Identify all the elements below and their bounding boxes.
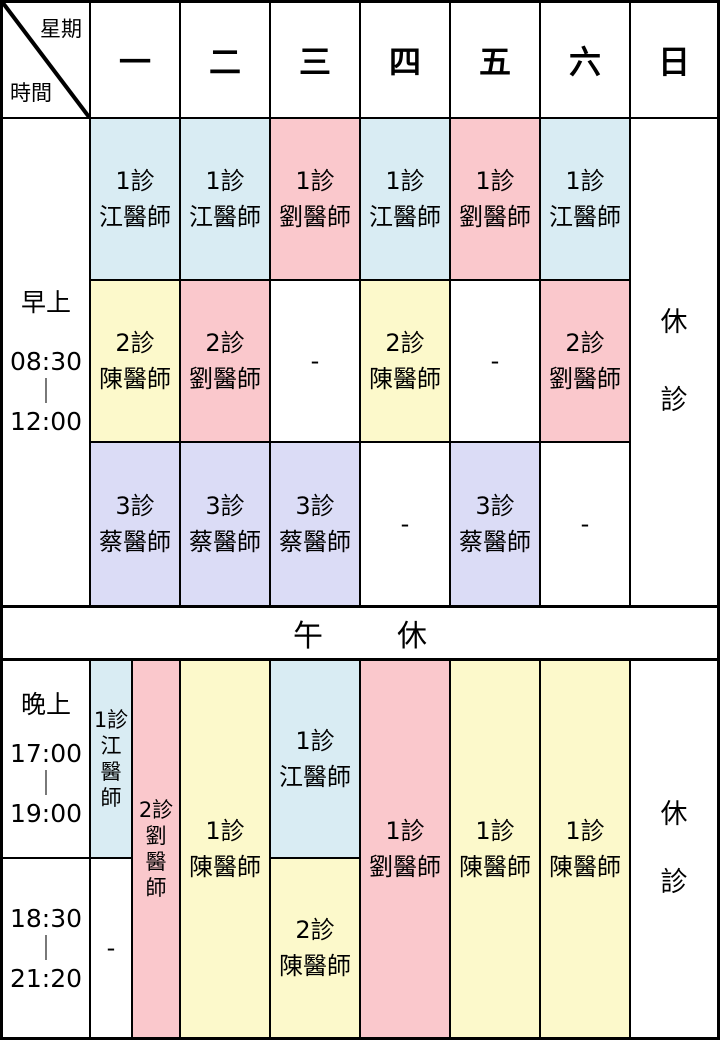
doctor-label: 劉醫師 (549, 361, 621, 397)
doctor-label: 陳醫師 (99, 361, 171, 397)
cell-thu-evening-room1: 1診 劉醫師 (361, 661, 449, 1037)
lunch-char-2: 休 (397, 611, 427, 655)
cell-wed-evening-room2-late: 2診 陳醫師 (271, 859, 359, 1037)
closed-char-2: 診 (661, 868, 688, 898)
day-header-mon: 一 (91, 3, 179, 117)
room-label: 1診 (385, 813, 424, 849)
doctor-char: 師 (146, 875, 167, 901)
morning-period-label: 早上 (21, 285, 71, 320)
cell-mon-evening-room1-late-empty: - (91, 859, 131, 1037)
doctor-label: 劉醫師 (279, 199, 351, 235)
evening-slot1-start: 17:00 (10, 736, 82, 771)
cell-fri-morning-room1: 1診 劉醫師 (451, 119, 539, 279)
room-label: 1診 (205, 163, 244, 199)
cell-mon-evening-room1-early: 1診 江 醫 師 (91, 661, 131, 857)
cell-fri-morning-room2-empty: - (451, 281, 539, 441)
day-header-tue: 二 (181, 3, 269, 117)
room-label: 1診 (475, 163, 514, 199)
empty-slot-dash: - (581, 506, 590, 542)
day-header-sun: 日 (631, 3, 717, 117)
room-label: 1診 (295, 723, 334, 759)
header-corner-cell: 星期 時間 (3, 3, 89, 117)
doctor-label: 蔡醫師 (99, 524, 171, 560)
cell-wed-morning-room1: 1診 劉醫師 (271, 119, 359, 279)
doctor-label: 陳醫師 (549, 849, 621, 885)
cell-mon-morning-room1: 1診 江醫師 (91, 119, 179, 279)
doctor-label: 江醫師 (549, 199, 621, 235)
cell-sat-morning-room2: 2診 劉醫師 (541, 281, 629, 441)
doctor-label: 劉醫師 (459, 199, 531, 235)
doctor-label: 劉醫師 (369, 849, 441, 885)
doctor-char: 醫 (146, 849, 167, 875)
evening-slot2-separator: ｜ (33, 936, 58, 961)
doctor-label: 蔡醫師 (189, 524, 261, 560)
cell-mon-evening-room2: 2診 劉 醫 師 (133, 661, 179, 1037)
doctor-label: 蔡醫師 (459, 524, 531, 560)
doctor-label: 江醫師 (369, 199, 441, 235)
room-label: 1診 (565, 163, 604, 199)
cell-mon-morning-room2: 2診 陳醫師 (91, 281, 179, 441)
evening-period-label: 晚上 (21, 687, 71, 722)
day-header-wed: 三 (271, 3, 359, 117)
evening-slot2-end: 21:20 (10, 961, 82, 996)
cell-thu-morning-room1: 1診 江醫師 (361, 119, 449, 279)
doctor-label: 江醫師 (279, 759, 351, 795)
evening-section: 晚上 17:00 ｜ 19:00 18:30 ｜ 21:20 1診 江 醫 師 … (3, 661, 717, 1037)
closed-char-2: 診 (661, 386, 688, 416)
evening-time-label-2: 18:30 ｜ 21:20 (3, 859, 89, 1037)
cell-tue-morning-room1: 1診 江醫師 (181, 119, 269, 279)
corner-label-time: 時間 (10, 77, 52, 107)
cell-fri-morning-room3: 3診 蔡醫師 (451, 443, 539, 605)
evening-slot2-start: 18:30 (10, 901, 82, 936)
room-label: 1診 (565, 813, 604, 849)
cell-tue-evening-room1: 1診 陳醫師 (181, 661, 269, 1037)
morning-time-separator: ｜ (33, 379, 58, 404)
room-label: 1診 (475, 813, 514, 849)
room-label: 2診 (115, 325, 154, 361)
doctor-char: 師 (101, 785, 122, 811)
cell-sun-evening-closed: 休 診 (631, 661, 717, 1037)
cell-tue-morning-room3: 3診 蔡醫師 (181, 443, 269, 605)
cell-wed-morning-room2-empty: - (271, 281, 359, 441)
room-label: 1診 (94, 707, 128, 733)
doctor-char: 劉 (146, 823, 167, 849)
cell-thu-morning-room2: 2診 陳醫師 (361, 281, 449, 441)
doctor-label: 陳醫師 (369, 361, 441, 397)
corner-label-week: 星期 (40, 13, 82, 43)
lunch-char-1: 午 (293, 611, 323, 655)
room-label: 3診 (115, 488, 154, 524)
morning-start-time: 08:30 (10, 344, 82, 379)
doctor-label: 陳醫師 (459, 849, 531, 885)
room-label: 1診 (385, 163, 424, 199)
doctor-label: 蔡醫師 (279, 524, 351, 560)
cell-thu-morning-room3-empty: - (361, 443, 449, 605)
evening-slot1-separator: ｜ (33, 771, 58, 796)
doctor-char: 江 (101, 733, 122, 759)
cell-sat-evening-room1: 1診 陳醫師 (541, 661, 629, 1037)
room-label: 1診 (115, 163, 154, 199)
morning-time-label: 早上 08:30 ｜ 12:00 (3, 119, 89, 605)
closed-char-1: 休 (661, 800, 688, 830)
empty-slot-dash: - (311, 343, 320, 379)
cell-wed-morning-room3: 3診 蔡醫師 (271, 443, 359, 605)
cell-mon-morning-room3: 3診 蔡醫師 (91, 443, 179, 605)
evening-slot1-end: 19:00 (10, 796, 82, 831)
cell-fri-evening-room1: 1診 陳醫師 (451, 661, 539, 1037)
room-label: 2診 (565, 325, 604, 361)
empty-slot-dash: - (107, 934, 116, 962)
morning-end-time: 12:00 (10, 404, 82, 439)
room-label: 3診 (475, 488, 514, 524)
room-label: 2診 (295, 912, 334, 948)
day-header-sat: 六 (541, 3, 629, 117)
day-header-thu: 四 (361, 3, 449, 117)
doctor-label: 劉醫師 (189, 361, 261, 397)
cell-sat-morning-room1: 1診 江醫師 (541, 119, 629, 279)
empty-slot-dash: - (401, 506, 410, 542)
empty-slot-dash: - (491, 343, 500, 379)
cell-sat-morning-room3-empty: - (541, 443, 629, 605)
room-label: 2診 (139, 797, 173, 823)
evening-time-label-1: 晚上 17:00 ｜ 19:00 (3, 661, 89, 857)
room-label: 3診 (205, 488, 244, 524)
doctor-label: 陳醫師 (189, 849, 261, 885)
lunch-break-bar: 午 休 (3, 608, 717, 658)
cell-wed-evening-room1-early: 1診 江醫師 (271, 661, 359, 857)
cell-tue-morning-room2: 2診 劉醫師 (181, 281, 269, 441)
cell-sun-morning-closed: 休 診 (631, 119, 717, 605)
room-label: 1診 (205, 813, 244, 849)
room-label: 2診 (205, 325, 244, 361)
doctor-label: 陳醫師 (279, 948, 351, 984)
room-label: 3診 (295, 488, 334, 524)
room-label: 1診 (295, 163, 334, 199)
doctor-label: 江醫師 (99, 199, 171, 235)
doctor-char: 醫 (101, 759, 122, 785)
closed-char-1: 休 (661, 308, 688, 338)
room-label: 2診 (385, 325, 424, 361)
day-header-fri: 五 (451, 3, 539, 117)
doctor-label: 江醫師 (189, 199, 261, 235)
clinic-schedule-table: 星期 時間 一 二 三 四 五 六 日 早上 08:30 ｜ 12:00 1診 … (0, 0, 720, 1040)
morning-section: 星期 時間 一 二 三 四 五 六 日 早上 08:30 ｜ 12:00 1診 … (3, 3, 717, 605)
